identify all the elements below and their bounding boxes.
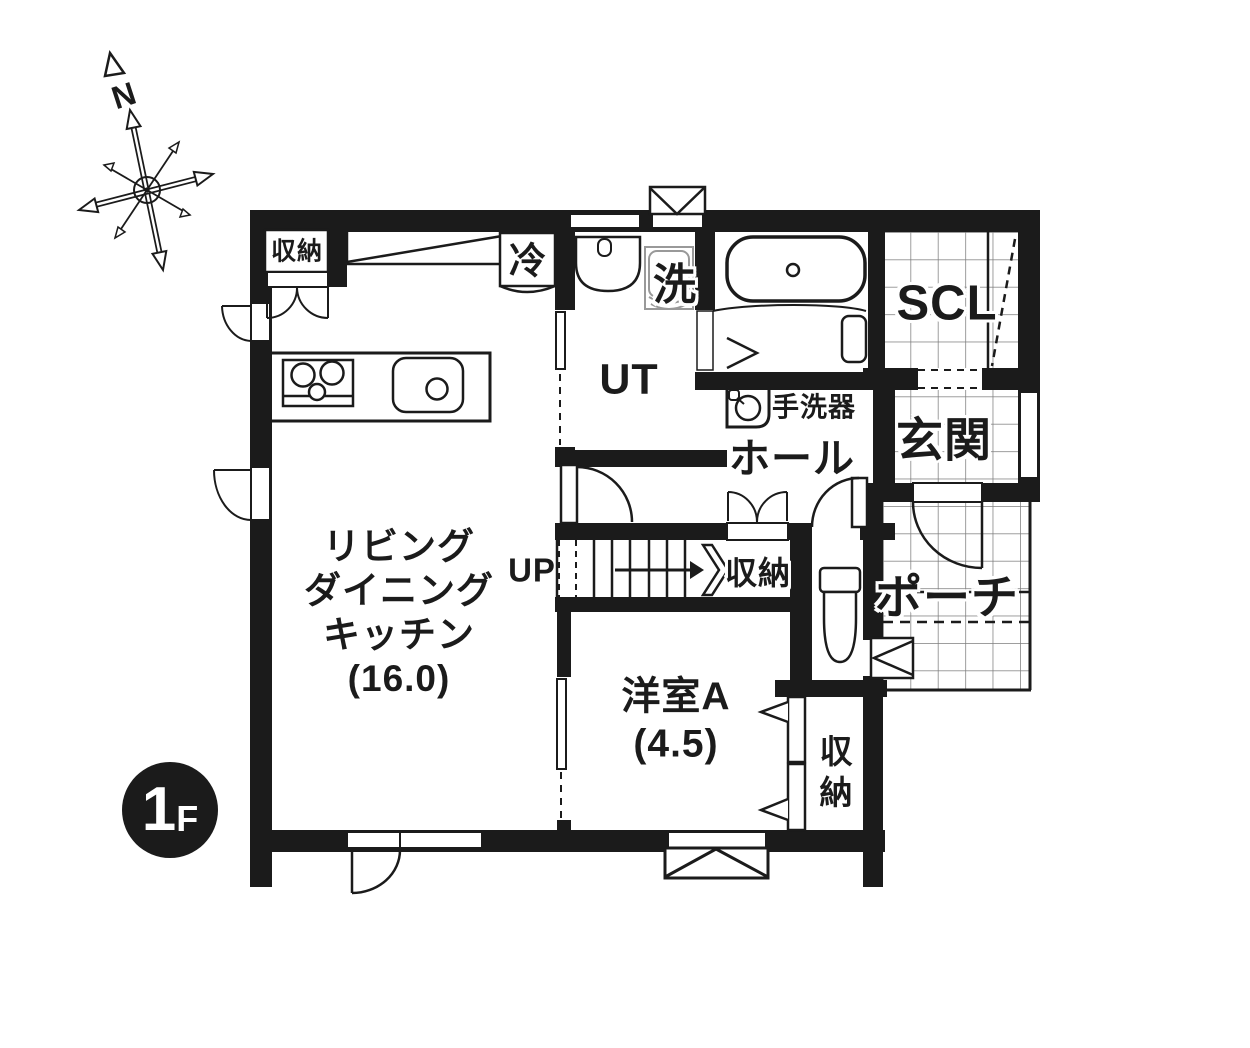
floor-number: 1 [142, 779, 176, 841]
sliding-door-ut [556, 312, 565, 369]
room-label-hall: ホール [729, 439, 855, 480]
room-label-storage-western-room: 収納 [817, 731, 855, 813]
toilet-door [852, 478, 867, 527]
floor-badge: 1F [122, 762, 218, 858]
room-label-utility: UT [599, 359, 658, 402]
compass-icon: N [55, 48, 255, 298]
room-label-western-room-area: (4.5) [633, 725, 718, 764]
room-label-ldk: リビング ダイニング キッチン (16.0) [249, 525, 549, 701]
room-label-porch: ポーチ [875, 574, 1019, 621]
ut-sink-icon [576, 237, 640, 291]
vent-box-icon [650, 187, 705, 214]
room-label-storage-stairs: 収納 [725, 557, 791, 589]
terrace-door [347, 832, 400, 848]
front-door [913, 483, 982, 502]
ldk-line1: リビング [249, 525, 549, 569]
room-label-refrigerator: 冷 [509, 243, 547, 280]
room-label-shoe-closet: SCL [897, 280, 998, 329]
room-label-hand-wash: 手洗器 [772, 395, 856, 422]
ldk-line3: キッチン [249, 613, 549, 657]
ldk-hall-door [561, 465, 577, 523]
room-label-washer: 洗 [653, 265, 697, 308]
floor-suffix: F [176, 801, 198, 837]
compass-north-label: N [107, 75, 140, 116]
stairs [557, 540, 728, 597]
closet-folding-door [788, 697, 805, 762]
ldk-line2: ダイニング [249, 569, 549, 613]
toilet-icon [820, 568, 860, 662]
shutter-box-icon [665, 848, 768, 878]
floor-plan-page: N 収納 冷 洗 UT SCL 手洗器 ホール 玄関 UP 収納 ポーチ リビン… [0, 0, 1250, 1048]
bath-folding-door [727, 338, 757, 368]
room-label-western-room: 洋室A [621, 678, 730, 717]
ldk-area: (16.0) [249, 657, 549, 701]
room-label-storage-ldk: 収納 [271, 240, 323, 265]
room-label-entrance: 玄関 [896, 417, 992, 464]
hand-wash-icon [727, 388, 769, 427]
sliding-door-western-room [557, 679, 566, 769]
